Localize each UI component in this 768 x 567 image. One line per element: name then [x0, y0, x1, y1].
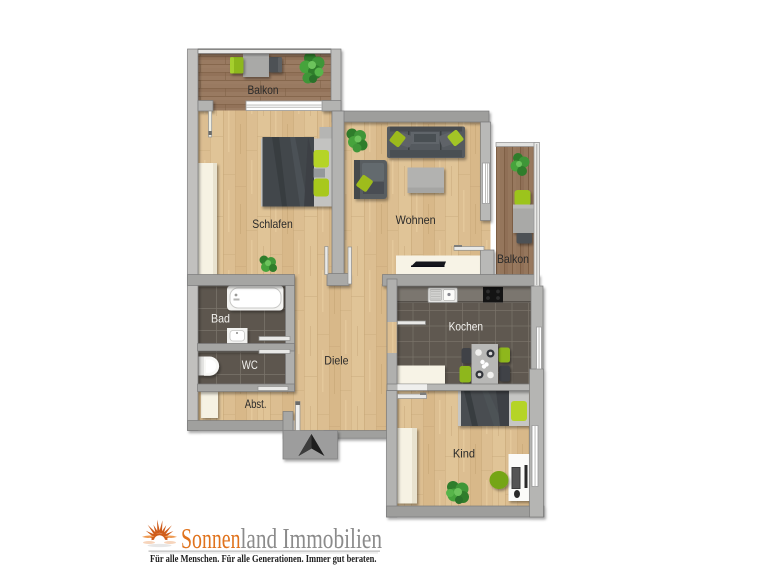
svg-text:WC: WC — [242, 358, 258, 372]
svg-text:Bad: Bad — [211, 312, 230, 326]
svg-text:Für alle Menschen. Für alle Ge: Für alle Menschen. Für alle Generationen… — [150, 554, 377, 565]
svg-text:Kochen: Kochen — [449, 320, 483, 334]
svg-text:Diele: Diele — [324, 354, 348, 368]
svg-text:Kind: Kind — [453, 447, 475, 461]
svg-text:Abst.: Abst. — [245, 397, 267, 411]
svg-text:land Immobilien: land Immobilien — [241, 524, 383, 555]
svg-text:Sonnen: Sonnen — [181, 524, 241, 555]
svg-text:Balkon: Balkon — [497, 252, 529, 266]
svg-text:Schlafen: Schlafen — [252, 217, 293, 231]
svg-text:Balkon: Balkon — [248, 83, 279, 97]
svg-text:Wohnen: Wohnen — [396, 213, 436, 227]
